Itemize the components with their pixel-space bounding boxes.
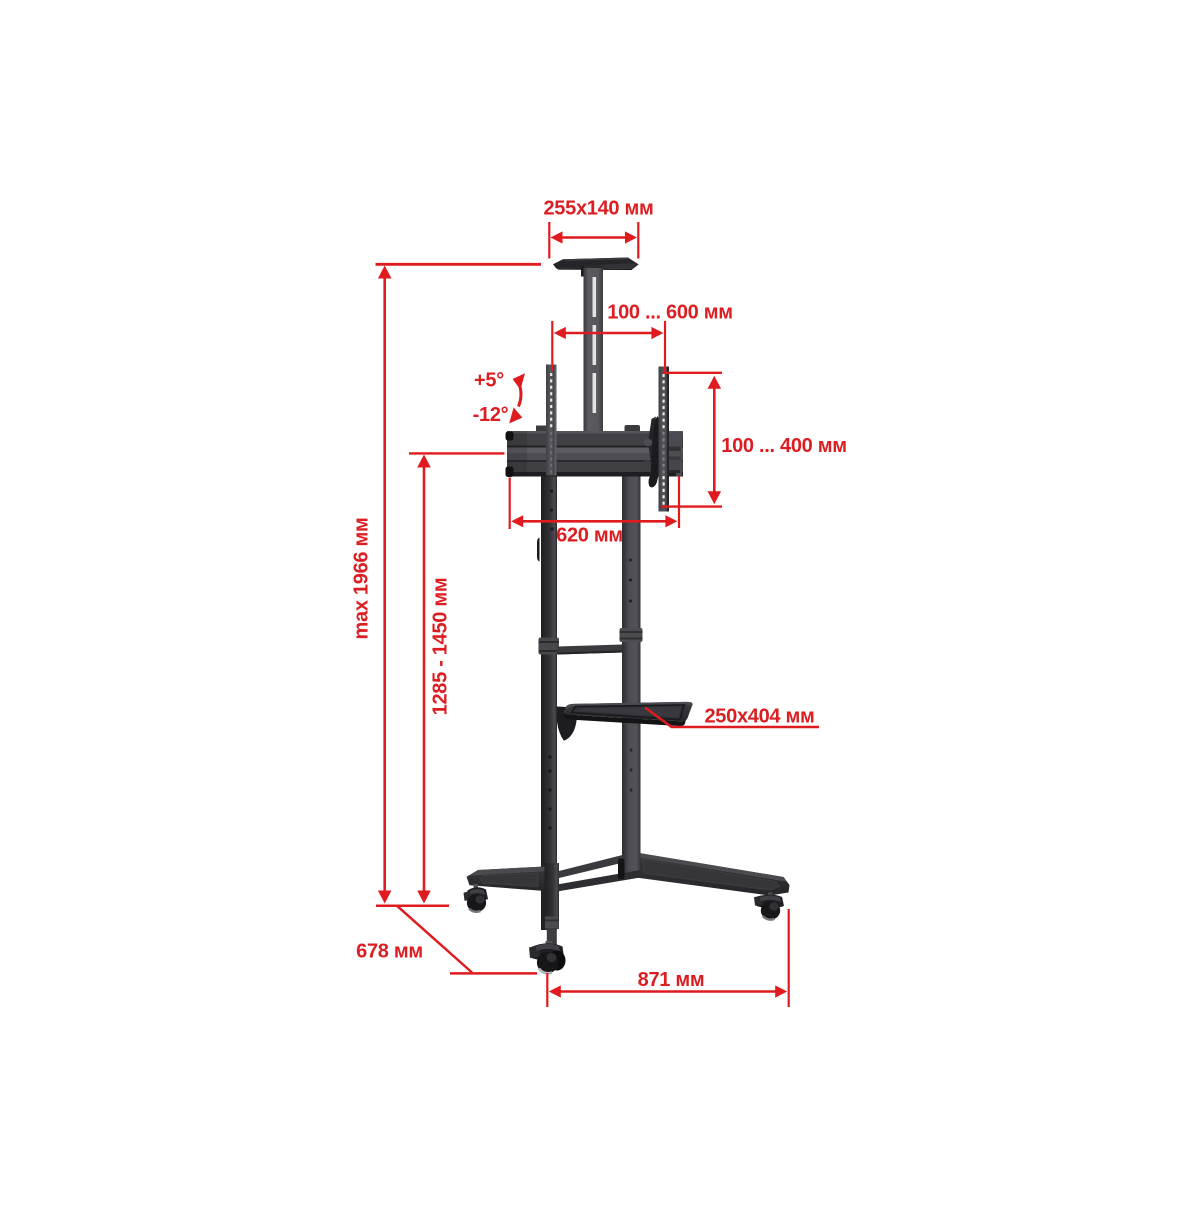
svg-text:871 мм: 871 мм bbox=[638, 969, 705, 991]
svg-text:620 мм: 620 мм bbox=[556, 525, 623, 547]
svg-text:+5°: +5° bbox=[474, 370, 504, 392]
svg-text:-12°: -12° bbox=[473, 404, 509, 426]
svg-text:250x404 мм: 250x404 мм bbox=[704, 706, 814, 728]
svg-text:100 ... 600 мм: 100 ... 600 мм bbox=[607, 302, 732, 324]
svg-text:255x140 мм: 255x140 мм bbox=[543, 198, 653, 220]
svg-text:678 мм: 678 мм bbox=[356, 941, 423, 963]
svg-text:1285 - 1450 мм: 1285 - 1450 мм bbox=[430, 578, 452, 716]
svg-text:max 1966 мм: max 1966 мм bbox=[351, 518, 373, 640]
svg-text:100 ... 400 мм: 100 ... 400 мм bbox=[721, 435, 846, 457]
